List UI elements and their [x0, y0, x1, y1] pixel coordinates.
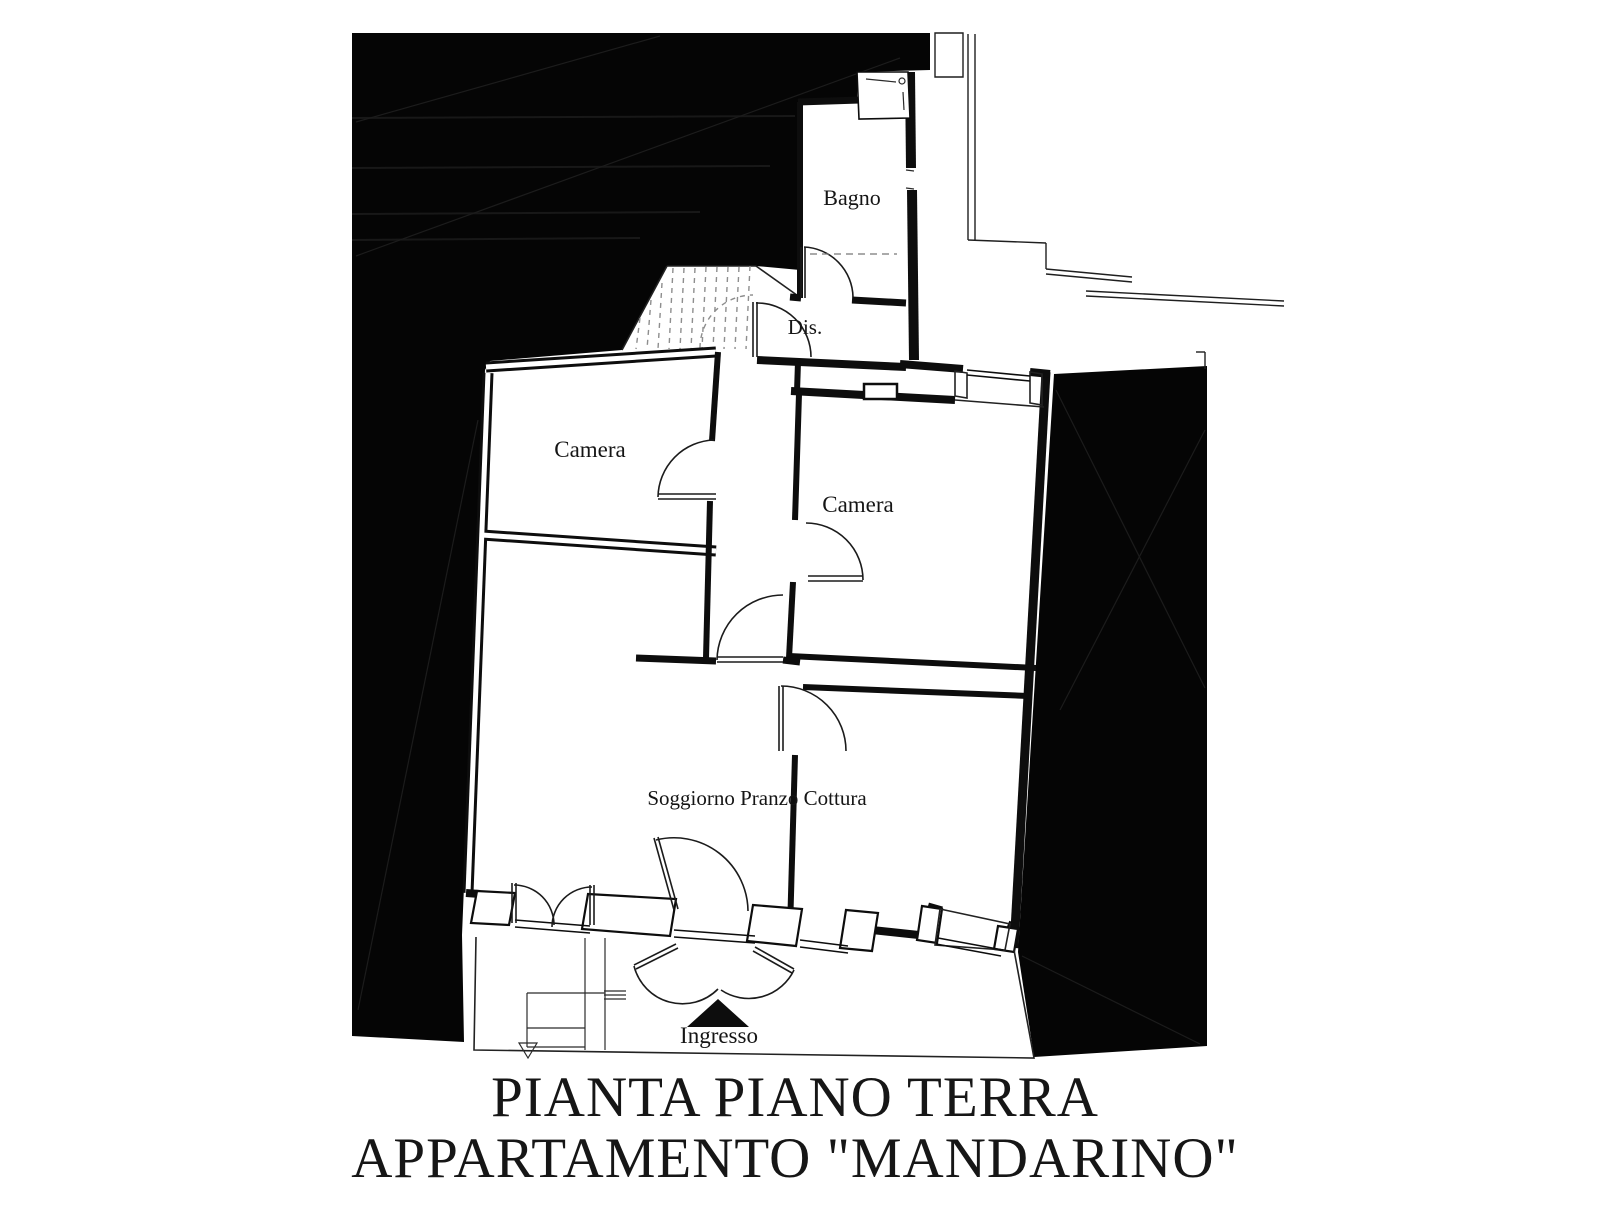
door-corridor-soggiorno — [717, 595, 783, 662]
door-camera-left — [658, 440, 716, 499]
label-camera-right: Camera — [822, 492, 894, 517]
floor-plan-drawing: Bagno Dis. Camera Camera Soggiorno Pranz… — [0, 0, 1606, 1205]
bagno-window-box — [857, 72, 914, 189]
stair-direction-arc — [700, 295, 753, 348]
label-camera-left: Camera — [554, 437, 626, 462]
label-soggiorno: Soggiorno Pranzo Cottura — [647, 786, 867, 810]
wall-notch — [864, 384, 897, 399]
label-ingresso: Ingresso — [680, 1023, 758, 1048]
plan-title: PIANTA PIANO TERRA APPARTAMENTO "MANDARI… — [351, 1066, 1239, 1190]
door-camera-right — [806, 523, 863, 581]
neighbor-building-lines — [935, 33, 1284, 369]
label-bagno: Bagno — [823, 185, 880, 210]
black-mass-right — [1018, 366, 1207, 1057]
plan-title-line2: APPARTAMENTO "MANDARINO" — [351, 1127, 1239, 1190]
exterior-walls-outlined — [468, 352, 716, 893]
label-dis: Dis. — [788, 315, 822, 339]
floor-plan-page: Bagno Dis. Camera Camera Soggiorno Pranz… — [0, 0, 1606, 1205]
door-room-se — [779, 686, 846, 751]
door-bagno — [801, 247, 897, 298]
plan-title-line1: PIANTA PIANO TERRA — [491, 1066, 1099, 1129]
